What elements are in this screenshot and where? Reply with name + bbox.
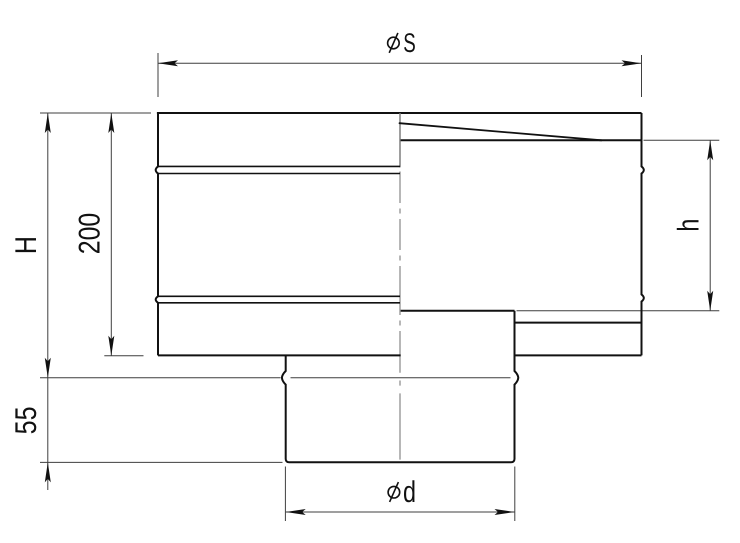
svg-text:55: 55 <box>10 406 43 434</box>
svg-text:H: H <box>10 236 43 254</box>
svg-text:S: S <box>403 28 416 58</box>
svg-text:h: h <box>673 219 706 232</box>
svg-text:200: 200 <box>74 213 107 255</box>
svg-text:d: d <box>403 476 416 509</box>
